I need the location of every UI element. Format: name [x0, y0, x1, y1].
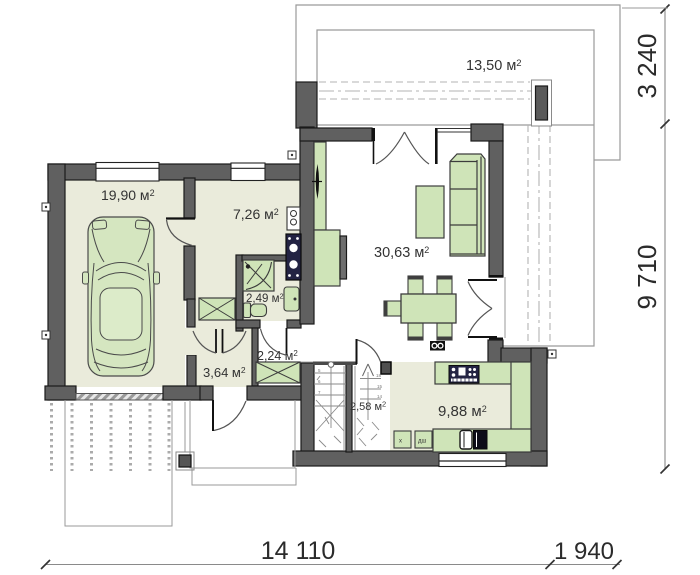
- svg-text:дш: дш: [418, 439, 427, 445]
- svg-text:18: 18: [376, 373, 382, 378]
- svg-text:2,24 м2: 2,24 м2: [257, 349, 298, 363]
- svg-text:30,63 м2: 30,63 м2: [374, 245, 429, 261]
- svg-text:13,50 м2: 13,50 м2: [466, 58, 522, 74]
- svg-text:14: 14: [377, 394, 383, 399]
- svg-text:2,58 м2: 2,58 м2: [350, 400, 386, 414]
- svg-text:15: 15: [377, 384, 383, 389]
- svg-text:9,88 м2: 9,88 м2: [438, 403, 487, 420]
- svg-text:14 110: 14 110: [261, 537, 336, 565]
- svg-text:1 940: 1 940: [554, 538, 614, 565]
- svg-text:9 710: 9 710: [632, 244, 662, 309]
- svg-text:x: x: [399, 439, 402, 445]
- svg-text:2,49 м2: 2,49 м2: [246, 292, 284, 306]
- svg-text:3 240: 3 240: [632, 33, 662, 98]
- svg-text:3,64 м2: 3,64 м2: [203, 365, 246, 380]
- svg-text:7,26 м2: 7,26 м2: [233, 206, 279, 222]
- svg-text:19,90 м2: 19,90 м2: [101, 187, 155, 203]
